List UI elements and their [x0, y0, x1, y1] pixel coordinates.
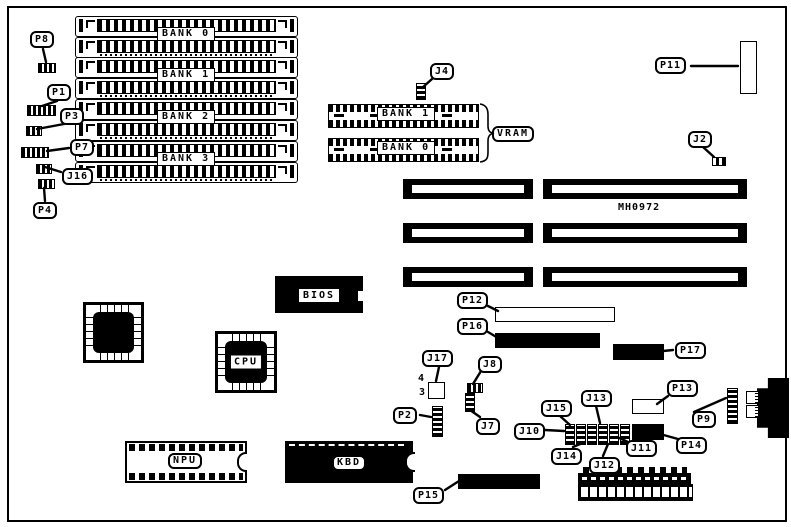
- jumper-j13: [598, 424, 608, 445]
- connector-p15: [458, 474, 540, 489]
- callout-j16: J16: [62, 168, 93, 185]
- kbd-label: KBD: [332, 455, 366, 471]
- kbd-dash-line: [289, 444, 404, 446]
- asic-chip: [83, 302, 144, 363]
- bios-label: BIOS: [298, 288, 340, 303]
- cpu-label: CPU: [230, 355, 262, 370]
- callout-j14: J14: [551, 448, 582, 465]
- connector-p9: [727, 388, 738, 424]
- callout-p15: P15: [413, 487, 444, 504]
- connector-p12: [495, 307, 615, 322]
- bank-label: BANK 0: [157, 27, 215, 41]
- callout-p13: P13: [667, 380, 698, 397]
- kbd-notch: [405, 452, 415, 472]
- callout-j15: J15: [541, 400, 572, 417]
- din-plug-bottom: [746, 405, 759, 418]
- vram-bank-label: BANK 0: [377, 141, 435, 155]
- npu-label: NPU: [168, 453, 202, 469]
- jumper-j10: [565, 424, 575, 445]
- jumper-j17: [428, 382, 445, 399]
- callout-p9: P9: [692, 411, 716, 428]
- callout-p2: P2: [393, 407, 417, 424]
- callout-j4: J4: [430, 63, 454, 80]
- callout-j2: J2: [688, 131, 712, 148]
- callout-p16: P16: [457, 318, 488, 335]
- callout-j7: J7: [476, 418, 500, 435]
- connector-p2: [432, 406, 443, 437]
- bank-label: BANK 1: [157, 68, 215, 82]
- j17-pin4-label: 4: [418, 373, 425, 384]
- jumper-j12: [609, 424, 619, 445]
- connector-p1: [27, 105, 56, 116]
- expansion-slot: [543, 223, 747, 243]
- callout-j12: J12: [589, 457, 620, 474]
- j17-pin3-label: 3: [419, 387, 426, 398]
- callout-p7: P7: [70, 139, 94, 156]
- power-connector-body: [578, 473, 691, 484]
- jumper-j15: [576, 424, 586, 445]
- connector-p8: [38, 63, 56, 73]
- expansion-slot: [543, 267, 747, 287]
- pin1-marker: [265, 337, 271, 343]
- jumper-j8: [467, 383, 483, 393]
- callout-p17: P17: [675, 342, 706, 359]
- din-plug-top: [746, 391, 759, 404]
- jumper-j14: [587, 424, 597, 445]
- bios-notch: [358, 291, 363, 301]
- jumper-j2: [712, 157, 726, 166]
- jumper-j16: [36, 164, 52, 174]
- jumper-j4: [416, 83, 426, 100]
- callout-p12: P12: [457, 292, 488, 309]
- vram-bank-label: BANK 1: [377, 107, 435, 121]
- npu-notch: [237, 452, 247, 472]
- connector-p3: [26, 126, 42, 136]
- motherboard-diagram: BANK 0 BANK 1 BANK 2 BANK 3 BANK 1 BANK …: [0, 0, 791, 527]
- callout-p1: P1: [47, 84, 71, 101]
- part-number-label: MH0972: [618, 202, 660, 213]
- callout-j13: J13: [581, 390, 612, 407]
- connector-p14: [632, 424, 664, 440]
- vram-label: VRAM: [492, 126, 534, 142]
- expansion-slot: [543, 179, 747, 199]
- callout-j17: J17: [422, 350, 453, 367]
- callout-p14: P14: [676, 437, 707, 454]
- connector-p4: [38, 179, 55, 189]
- callout-j8: J8: [478, 356, 502, 373]
- power-connector-terminals: [578, 484, 693, 501]
- connector-p16: [495, 333, 600, 348]
- bank-label: BANK 2: [157, 110, 215, 124]
- connector-p11: [740, 41, 757, 94]
- expansion-slot: [403, 267, 533, 287]
- callout-p3: P3: [60, 108, 84, 125]
- connector-p17: [613, 344, 664, 360]
- expansion-slot: [403, 179, 533, 199]
- callout-j11: J11: [626, 440, 657, 457]
- callout-p8: P8: [30, 31, 54, 48]
- jumper-j7: [465, 393, 475, 412]
- callout-p11: P11: [655, 57, 686, 74]
- callout-p4: P4: [33, 202, 57, 219]
- callout-j10: J10: [514, 423, 545, 440]
- cpu-chip: CPU: [215, 331, 277, 393]
- expansion-slot: [403, 223, 533, 243]
- bank-label: BANK 3: [157, 152, 215, 166]
- connector-p13: [632, 399, 664, 414]
- connector-p7: [21, 147, 49, 158]
